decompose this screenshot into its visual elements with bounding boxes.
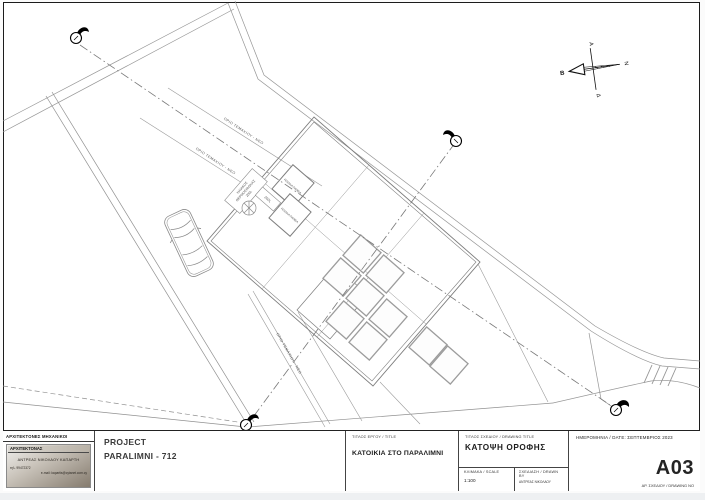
drawing-number-value: A03 (656, 457, 694, 480)
drawing-title-label: ΤΙΤΛΟΣ ΣΧΕΔΙΟΥ / DRAWING TITLE (465, 435, 562, 439)
south-boundary-dashed (3, 386, 244, 423)
project-label: PROJECT (104, 437, 336, 447)
architect-label: ΑΡΧΙΤΕΚΤΟΝΑΣ (8, 446, 89, 453)
plot-boundaries (3, 92, 614, 427)
scale-drawn-row: ΚΛΙΜΑΚΑ / SCALE 1:100 ΣΧΕΔΙΑΣΗ / DRAWN B… (459, 468, 568, 491)
drawn-by-label: ΣΧΕΔΙΑΣΗ / DRAWN BY (519, 470, 564, 478)
west-boundary-outer (46, 96, 248, 426)
survey-marker-1 (71, 27, 90, 43)
survey-marker-3 (241, 414, 260, 430)
road-right-inner (235, 1, 595, 326)
date-label: ΗΜΕΡΟΜΗΝΙΑ / DATE: (576, 435, 626, 440)
scale-cell: ΚΛΙΜΑΚΑ / SCALE 1:100 (459, 468, 515, 491)
road-top-left-inner (3, 9, 234, 132)
architect-stamp: ΑΡΧΙΤΕΚΤΟΝΑΣ ΑΝΤΡΕΑΣ ΝΙΚΟΛΑΟΥ ΚΑΠΑΡΤΗ τη… (6, 444, 91, 488)
parcel-lines (140, 88, 548, 427)
survey-marker-4 (611, 400, 630, 415)
project-title-label: ΤΙΤΛΟΣ ΕΡΓΟΥ / TITLE (352, 435, 452, 439)
drawing-title-value: ΚΑΤΟΨΗ ΟΡΟΦΗΣ (465, 443, 562, 452)
compass-south-label: Ν (622, 61, 628, 66)
road-curve-upper2 (595, 326, 700, 361)
drawn-by-cell: ΣΧΕΔΙΑΣΗ / DRAWN BY ΑΝΤΡΕΑΣ ΝΙΚΟΛΑΟΥ (515, 468, 568, 491)
date-value: ΣΕΠΤΕΜΒΡΙΟΣ 2023 (627, 435, 672, 440)
architect-phone: τηλ. 99472372 (10, 466, 87, 470)
date-line: ΗΜΕΡΟΜΗΝΙΑ / DATE: ΣΕΠΤΕΜΒΡΙΟΣ 2023 (576, 435, 693, 440)
west-boundary-inner (52, 92, 254, 422)
road-curve-upper (591, 331, 700, 369)
title-block: ΑΡΧΙΤΕΚΤΟΝΕΣ ΜΗΧΑΝΙΚΟΙ ΑΡΧΙΤΕΚΤΟΝΑΣ ΑΝΤΡ… (3, 430, 700, 491)
title-block-title-column: ΤΙΤΛΟΣ ΕΡΓΟΥ / TITLE ΚΑΤΟΙΚΙΑ ΣΤΟ ΠΑΡΑΛΙ… (346, 431, 459, 491)
title-block-architect-column: ΑΡΧΙΤΕΚΤΟΝΕΣ ΜΗΧΑΝΙΚΟΙ ΑΡΧΙΤΕΚΤΟΝΑΣ ΑΝΤΡ… (3, 431, 95, 491)
scale-label: ΚΛΙΜΑΚΑ / SCALE (464, 470, 509, 474)
survey-markers (71, 27, 630, 430)
site-plan-drawing: ΗΛΙΑΚΟΣ ΘΕΡΜΟΣΙΦΩΝΑΣ 200L 200L ΗΛΙΑΚΑ ΠΑ… (0, 0, 705, 500)
south-boundary (3, 402, 246, 427)
drawing-title-cell: ΤΙΤΛΟΣ ΣΧΕΔΙΟΥ / DRAWING TITLE ΚΑΤΟΨΗ ΟΡ… (459, 431, 568, 468)
roof-drain-symbol (242, 201, 256, 215)
boundary-label-3: ΟΡΙΟ ΤΕΜΑΧΙΟΥ - ΝΕΟ (275, 332, 302, 375)
road-top-left-outer (3, 3, 228, 121)
architect-name: ΑΝΤΡΕΑΣ ΝΙΚΟΛΑΟΥ ΚΑΠΑΡΤΗ (10, 458, 87, 462)
project-name: PARALIMNI - 712 (104, 451, 336, 461)
culvert-hatch (644, 365, 676, 386)
architect-email: e-mail: kapartis@cytanet.com.cy (10, 471, 87, 475)
north-arrow-icon: Β Ν Α Δ (556, 37, 632, 102)
drawn-by-value: ΑΝΤΡΕΑΣ ΝΙΚΟΛΑΟΥ (519, 480, 564, 484)
firm-header: ΑΡΧΙΤΕΚΤΟΝΕΣ ΜΗΧΑΝΙΚΟΙ (3, 431, 94, 442)
axis-line-a (80, 45, 610, 405)
compass-north-label: Β (560, 70, 566, 77)
road-curve-lower (553, 380, 700, 403)
project-title-value: ΚΑΤΟΙΚΙΑ ΣΤΟ ΠΑΡΑΛΙΜΝΙ (352, 450, 452, 457)
survey-marker-2 (443, 130, 462, 146)
boundary-label-1: ΟΡΙΟ ΤΕΜΑΧΙΟΥ - ΝΕΟ (223, 117, 265, 146)
boundary-labels: ΟΡΙΟ ΤΕΜΑΧΙΟΥ - ΝΕΟ ΟΡΙΟ ΤΕΜΑΧΙΟΥ - ΝΕΟ … (195, 117, 303, 375)
compass-west-label: Δ (595, 93, 601, 98)
compass-east-label: Α (587, 42, 593, 47)
title-block-drawing-column: ΤΙΤΛΟΣ ΣΧΕΔΙΟΥ / DRAWING TITLE ΚΑΤΟΨΗ ΟΡ… (459, 431, 569, 491)
southeast-boundary (248, 403, 553, 427)
title-block-project-column: PROJECT PARALIMNI - 712 (95, 431, 346, 491)
scale-value: 1:100 (464, 478, 509, 483)
road-funnel-left (589, 333, 601, 399)
boundary-label-2: ΟΡΙΟ ΤΕΜΑΧΙΟΥ - ΝΕΟ (195, 147, 237, 176)
drawing-sheet-viewport: ΗΛΙΑΚΟΣ ΘΕΡΜΟΣΙΦΩΝΑΣ 200L 200L ΗΛΙΑΚΑ ΠΑ… (0, 0, 705, 500)
drawing-number-label: ΑΡ. ΣΧΕΔΙΟΥ / DRAWING NO (642, 483, 694, 488)
title-block-date-number-column: ΗΜΕΡΟΜΗΝΙΑ / DATE: ΣΕΠΤΕΜΒΡΙΟΣ 2023 A03 … (569, 431, 700, 491)
screenshot-bottom-strip (0, 493, 705, 500)
